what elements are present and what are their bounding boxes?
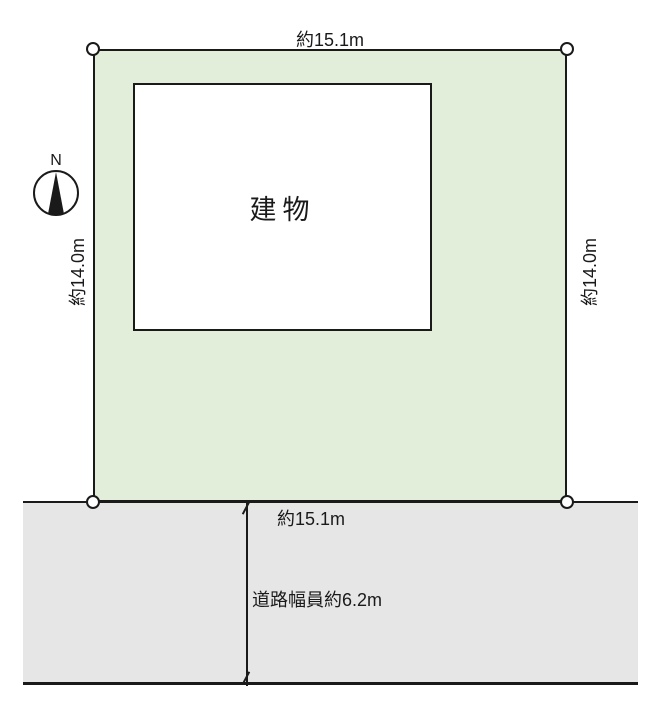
compass-needle-icon	[48, 172, 64, 214]
compass-north-label: N	[50, 152, 62, 169]
left-dimension-label: 約14.0m	[64, 238, 90, 306]
top-dimension-label: 約15.1m	[93, 26, 567, 52]
frontage-dimension-label: 約15.1m	[277, 505, 345, 531]
building-label: 建物	[250, 188, 316, 227]
road-width-dimension-line	[246, 502, 248, 686]
right-dimension-label: 約14.0m	[576, 238, 602, 306]
corner-marker-top-right	[560, 42, 574, 56]
corner-marker-bottom-right	[560, 495, 574, 509]
building: 建物	[133, 83, 432, 331]
corner-marker-top-left	[86, 42, 100, 56]
road-width-label: 道路幅員約6.2m	[252, 586, 382, 612]
lot-diagram: 建物 約15.1m 約14.0m 約14.0m 約15.1m 道路幅員約6.2m…	[0, 0, 666, 717]
corner-marker-bottom-left	[86, 495, 100, 509]
north-compass-icon: N	[21, 148, 91, 224]
